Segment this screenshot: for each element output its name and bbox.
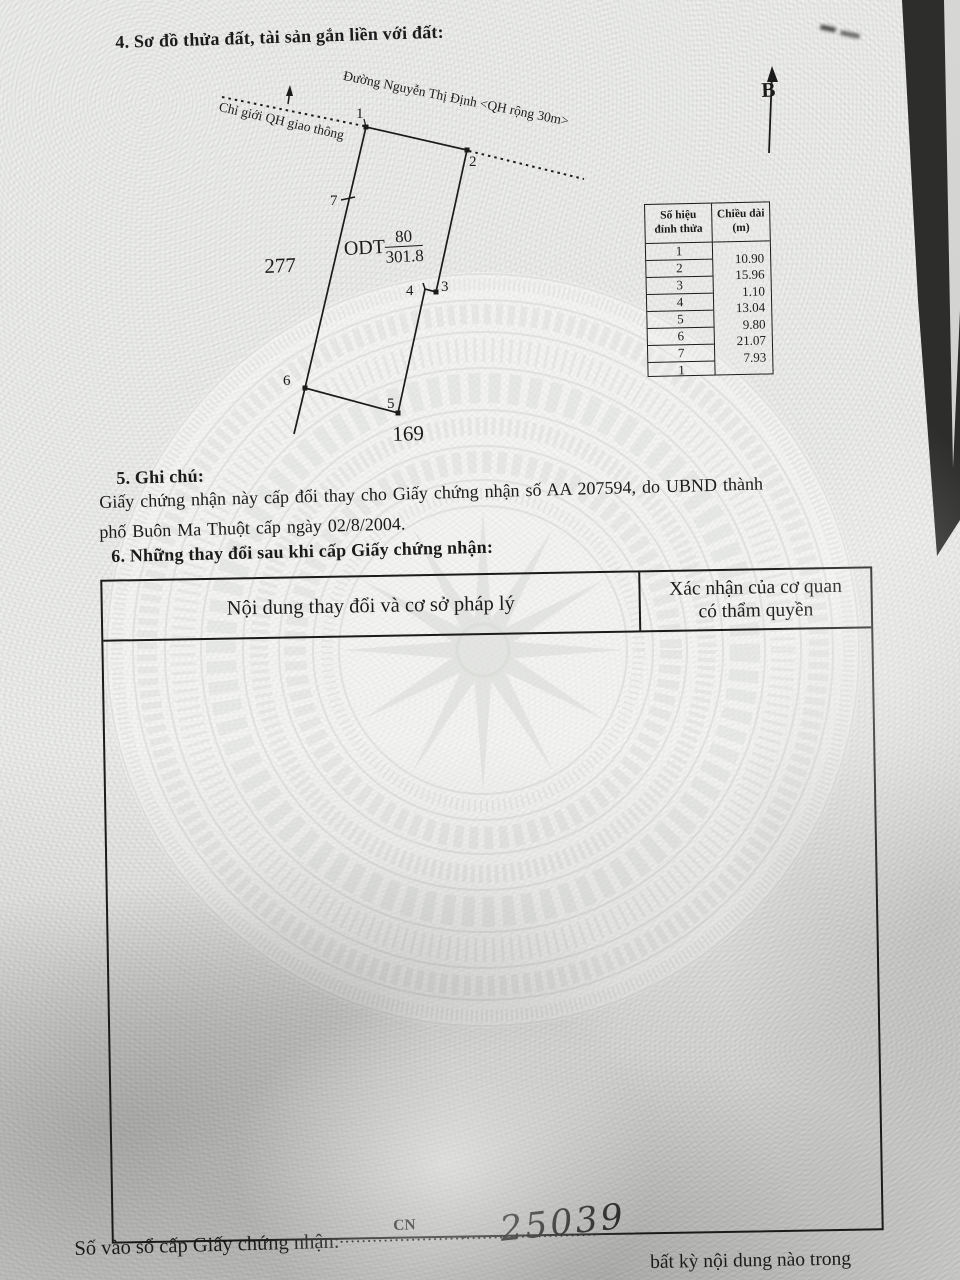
vertex-table-header: Số hiệu đỉnh thửa Chiều dài (m) [645, 202, 770, 244]
plot-diagram-linework [0, 0, 960, 520]
partial-bottom-text: bất kỳ nội dung nào trong [650, 1248, 851, 1274]
planning-boundary-dashed-line [222, 97, 584, 179]
changes-col1-header: Nội dung thay đổi và cơ sở pháp lý [102, 572, 641, 639]
table-row: 7 [648, 345, 714, 363]
vertex-dot-6 [303, 386, 308, 391]
boundary-arrow-head [286, 85, 293, 96]
table-row: 4 [647, 294, 713, 312]
vertex-dot-2 [465, 148, 470, 153]
table-row: 2 [646, 260, 712, 278]
table-row: 6 [648, 328, 714, 346]
edge-length: 9.80 [715, 316, 765, 333]
edge-length: 13.04 [715, 300, 765, 317]
vertex-dot-1 [364, 125, 369, 130]
edge-length: 10.90 [714, 250, 764, 267]
north-arrow-head [767, 66, 778, 82]
vertex-number-column: 1 2 3 4 5 6 7 1 [646, 243, 716, 376]
table-row: 3 [647, 277, 713, 295]
vertex-dot-3 [434, 290, 439, 295]
plot-polygon [305, 127, 467, 413]
boundary-extension-line [294, 388, 305, 434]
vertex-table-col1-header: Số hiệu đỉnh thửa [645, 204, 713, 243]
vertex-table-body: 1 2 3 4 5 6 7 1 10.90 15.96 1.10 13.04 9… [646, 241, 773, 376]
edge-length: 15.96 [714, 267, 764, 284]
vertex-dot-5 [396, 411, 401, 416]
vertex-length-table: Số hiệu đỉnh thửa Chiều dài (m) 1 2 3 4 … [644, 201, 774, 377]
table-row: 5 [647, 311, 713, 329]
edge-length: 1.10 [715, 283, 765, 300]
north-arrow-shaft [769, 73, 772, 153]
scanned-land-certificate-page: 4. Sơ đồ thửa đất, tài sản gắn liền với … [0, 0, 960, 1280]
section5-title: 5. Ghi chú: [116, 466, 204, 489]
vertex-table-col2-header: Chiều dài (m) [712, 202, 770, 241]
changes-col2-header: Xác nhận của cơ quan có thẩm quyền [640, 568, 871, 630]
edge-length: 21.07 [716, 333, 766, 350]
vertex7-tick [341, 197, 355, 200]
table-row: 1 [648, 362, 714, 379]
table-row: 1 [646, 243, 712, 261]
changes-table-header: Nội dung thay đổi và cơ sở pháp lý Xác n… [102, 568, 871, 641]
changes-table: Nội dung thay đổi và cơ sở pháp lý Xác n… [100, 566, 883, 1243]
vertex4-tick [423, 283, 425, 289]
edge-length: 7.93 [716, 349, 766, 366]
